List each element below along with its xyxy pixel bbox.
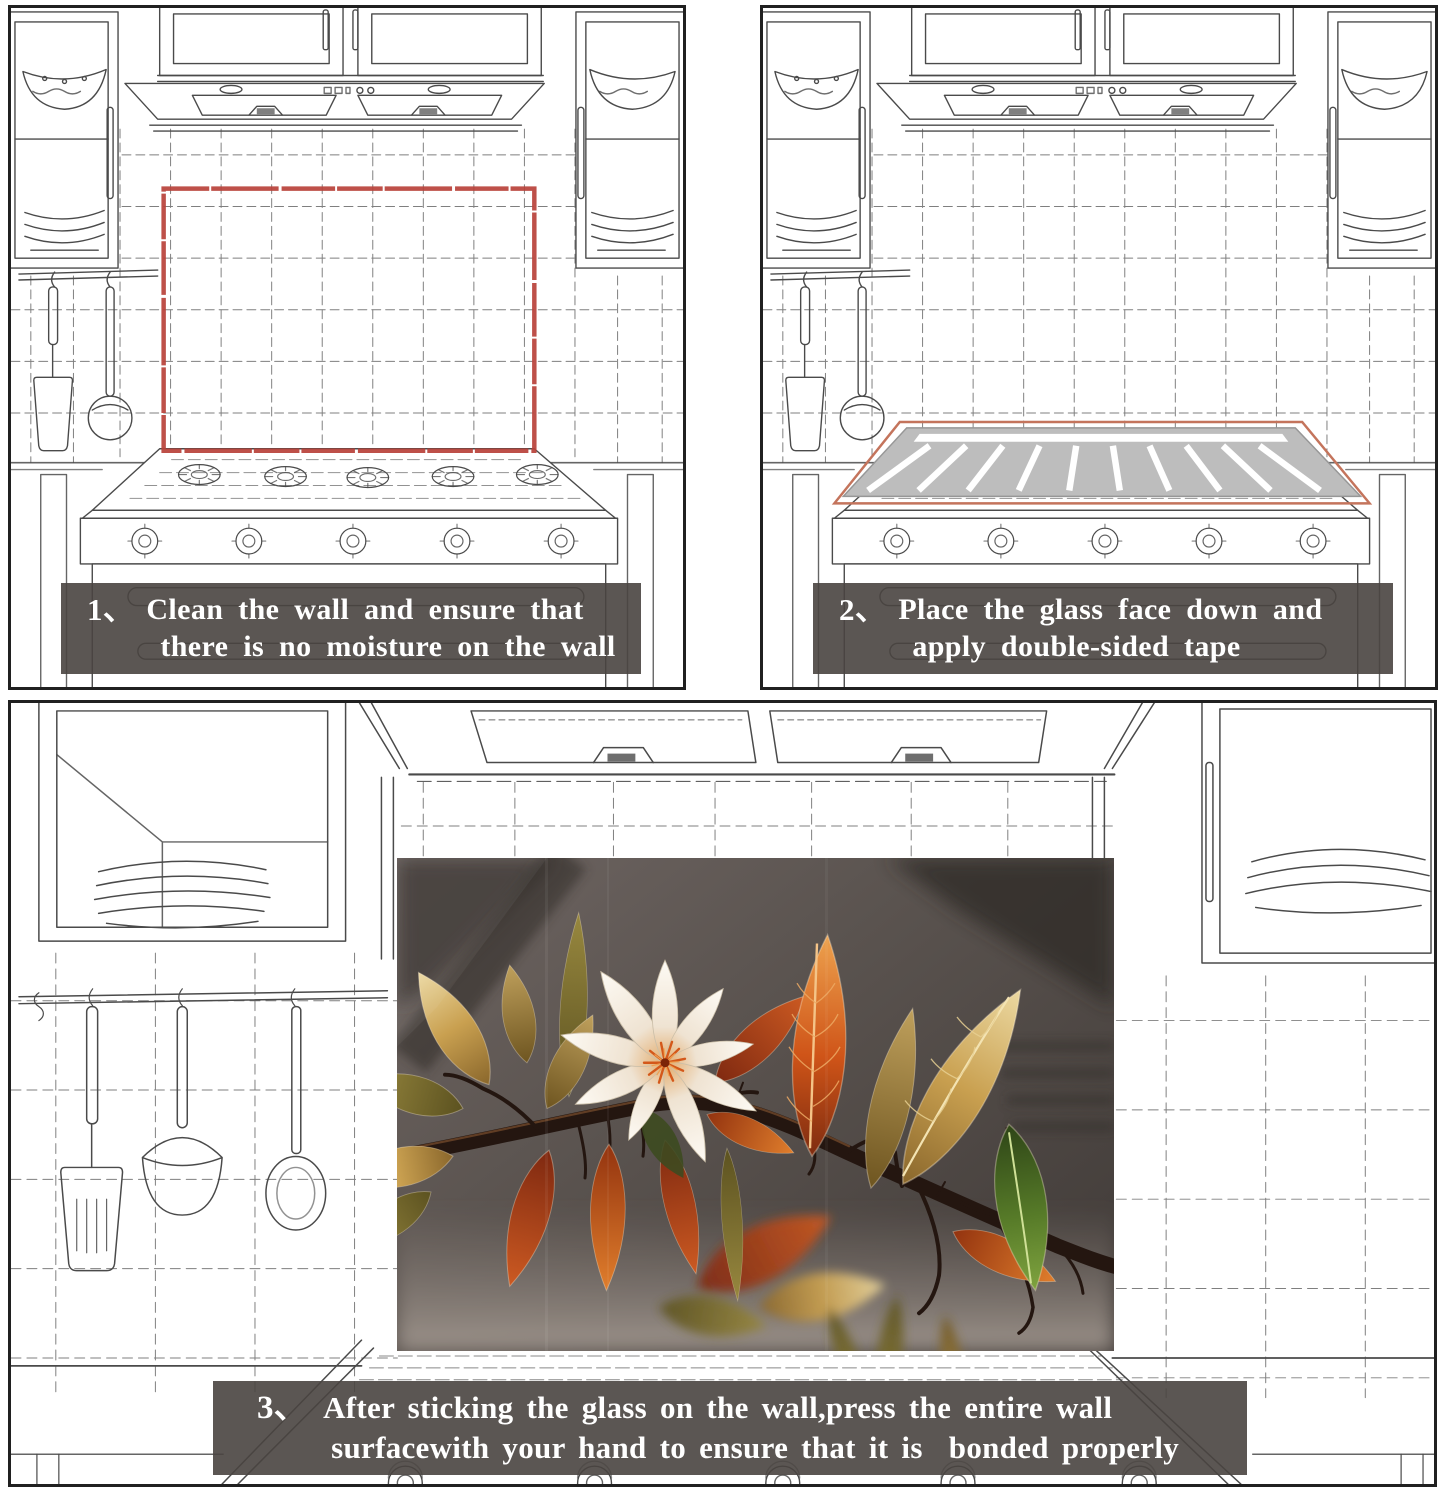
left-cabinet xyxy=(39,703,346,941)
glass-panel-face-down xyxy=(834,422,1369,503)
step-1-text-line1: Clean the wall and ensure that xyxy=(146,591,615,628)
step-2-text-line1: Place the glass face down and xyxy=(898,591,1322,628)
hanging-utensils xyxy=(19,989,387,1271)
step-1-caption: 1、 Clean the wall and ensure that there … xyxy=(61,583,641,674)
marked-area-outline xyxy=(164,189,535,451)
step-2-panel: 2、 Place the glass face down and apply d… xyxy=(760,5,1438,690)
tape-strip-top xyxy=(914,434,1289,442)
backsplash-artwork xyxy=(397,858,1114,1351)
step-2-text-line2: apply double-sided tape xyxy=(912,628,1322,665)
backsplash-artwork-image xyxy=(397,858,1114,1351)
step-1-panel: 1、 Clean the wall and ensure that there … xyxy=(8,5,686,690)
step-3-text-line2: surfacewith your hand to ensure that it … xyxy=(331,1428,1179,1468)
step-1-number: 1、 xyxy=(87,591,134,628)
step-3-caption: 3、 After sticking the glass on the wall,… xyxy=(213,1381,1247,1475)
step-1-text-line2: there is no moisture on the wall xyxy=(160,628,615,665)
step-3-text-line1: After sticking the glass on the wall,pre… xyxy=(323,1388,1179,1428)
step-2-number: 2、 xyxy=(839,591,886,628)
step-2-caption: 2、 Place the glass face down and apply d… xyxy=(813,583,1393,674)
step-3-panel: 3、 After sticking the glass on the wall,… xyxy=(8,700,1437,1487)
installation-instruction-sheet: 1、 Clean the wall and ensure that there … xyxy=(0,0,1445,1493)
step-3-number: 3、 xyxy=(257,1388,307,1428)
right-cabinet xyxy=(1202,703,1434,963)
